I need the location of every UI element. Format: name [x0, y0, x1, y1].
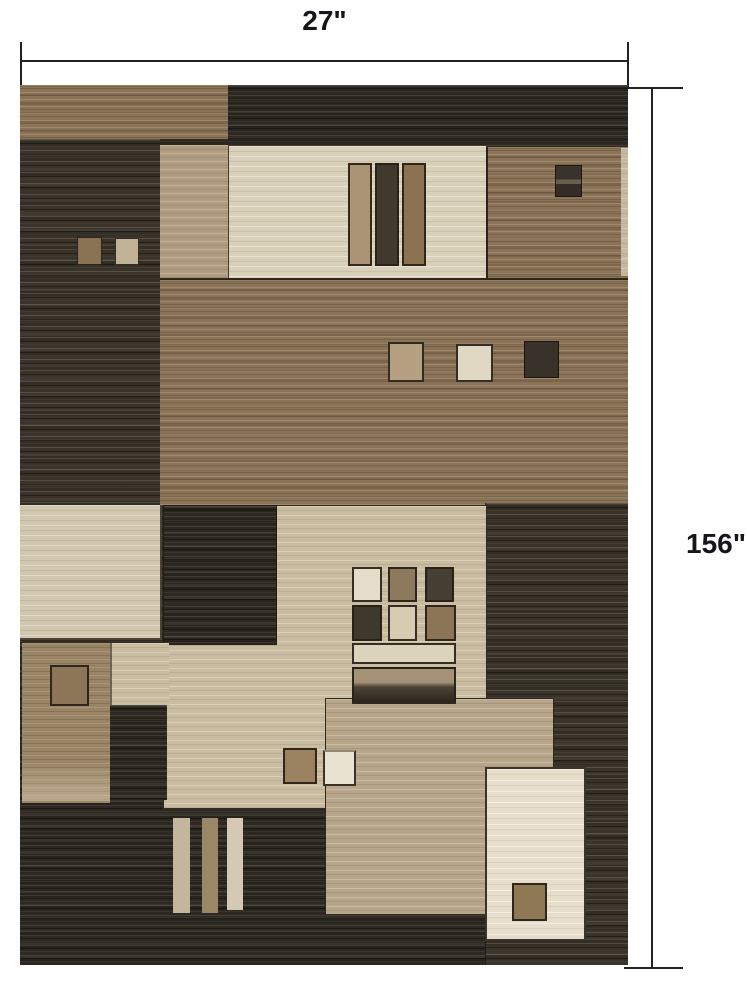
height-label: 156": [686, 530, 746, 558]
rug-grid-square-dark-1: [425, 567, 454, 602]
rug-grid-square-brown-2: [425, 605, 456, 641]
rug-square-left-brown: [77, 237, 102, 265]
rug-bottom-bar-brown: [202, 818, 218, 913]
rug-panel-middle-brown-band: [160, 278, 628, 506]
rug-panel-beige-patch: [110, 643, 169, 705]
rug-square-left-beige: [115, 238, 139, 265]
rug-bar-vertical-dark: [375, 163, 399, 266]
height-tick-bottom: [624, 967, 683, 969]
rug-bottom-bar-cream: [227, 818, 243, 910]
rug-bar-vertical-brown: [402, 163, 426, 266]
width-label: 27": [302, 5, 346, 36]
rug-panel-left-dark-block: [20, 139, 160, 505]
rug-square-center-white: [323, 750, 356, 786]
rug-grid-square-beige: [388, 605, 417, 641]
height-dimension-line: [651, 87, 653, 969]
rug-bar-horizontal-cream: [352, 643, 456, 664]
product-dimension-figure: 27" 156": [0, 0, 747, 1000]
rug-square-mid-tan: [388, 342, 424, 382]
rug-panel-center-dark-block: [163, 505, 277, 645]
rug-bottom-bar-beige: [173, 818, 190, 913]
width-label-wrap: 27": [20, 7, 629, 35]
rug-grid-square-cream: [352, 567, 382, 602]
rug-square-bottom-right-brown: [512, 883, 547, 921]
width-tick-left: [20, 42, 22, 85]
rug-bar-vertical-tan: [348, 163, 372, 266]
rug-square-top-right-dark: [555, 165, 582, 197]
rug-square-mid-dark: [524, 341, 559, 378]
rug-image: [20, 85, 628, 965]
rug-bar-horizontal-dark: [352, 667, 456, 704]
rug-right-edge-light-strip: [621, 148, 628, 276]
rug-square-center-brown: [283, 748, 317, 784]
rug-panel-bottom-left-brown-fade: [22, 761, 110, 801]
height-tick-top: [628, 87, 683, 89]
width-dimension-line: [20, 60, 629, 62]
rug-grid-square-brown-1: [388, 567, 417, 602]
rug-panel-dark-strip: [110, 705, 167, 800]
rug-panel-left-cream: [20, 505, 162, 640]
width-tick-right: [627, 42, 629, 88]
rug-square-bottom-left: [50, 665, 89, 706]
rug-panel-top-left-brown-band: [20, 85, 228, 141]
rug-grid-square-dark-2: [352, 605, 382, 641]
rug-square-mid-cream: [456, 344, 493, 382]
